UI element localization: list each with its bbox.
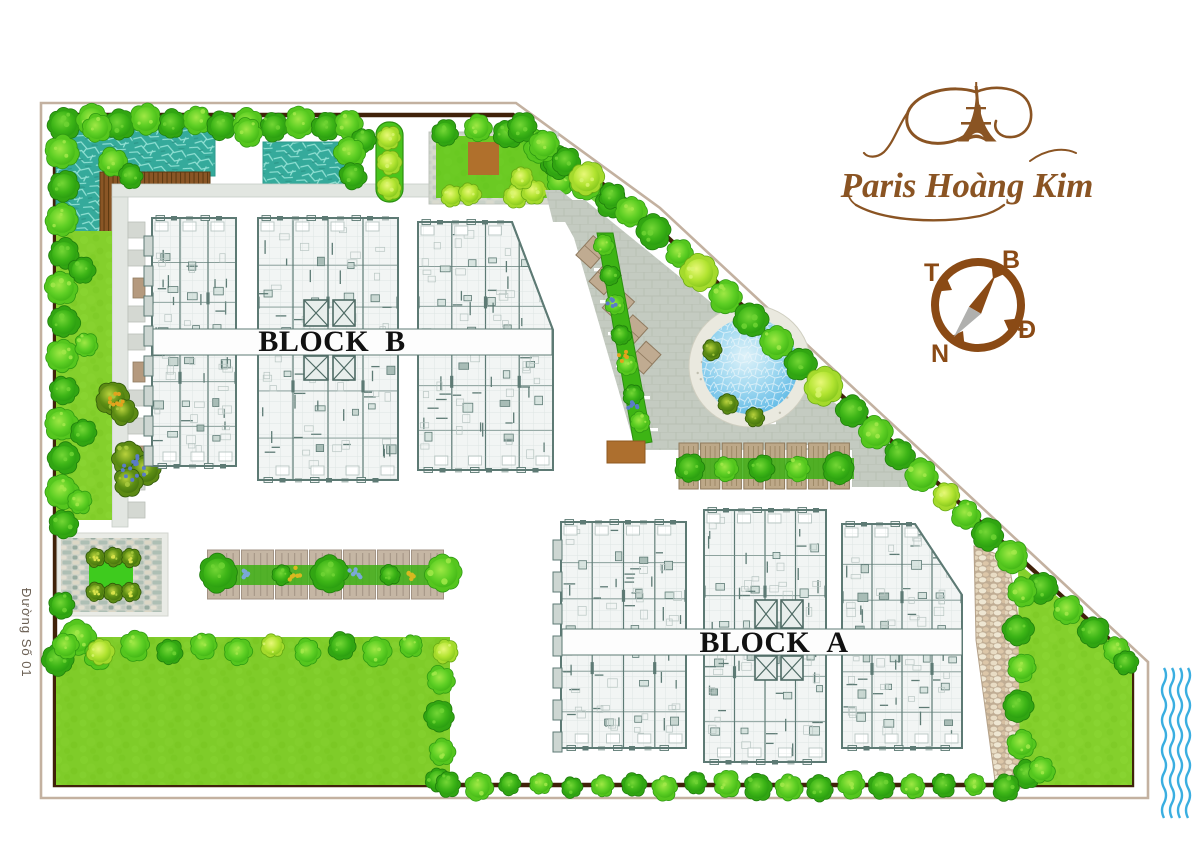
svg-text:Đ: Đ — [1018, 316, 1036, 344]
svg-text:N: N — [931, 340, 949, 368]
svg-text:Đường Số 01: Đường Số 01 — [19, 588, 34, 678]
svg-text:BLOCK A: BLOCK A — [699, 626, 848, 659]
svg-text:BLOCK B: BLOCK B — [258, 325, 405, 358]
svg-text:Paris Hoàng Kim: Paris Hoàng Kim — [840, 166, 1094, 205]
svg-text:T: T — [924, 259, 939, 287]
svg-text:B: B — [1002, 246, 1020, 274]
